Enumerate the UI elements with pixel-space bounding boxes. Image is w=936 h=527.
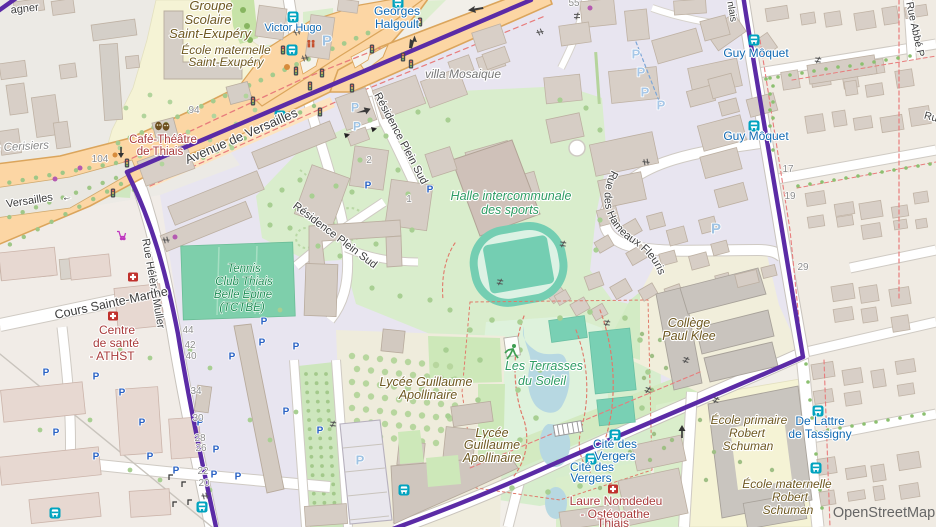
svg-text:44: 44 (182, 325, 194, 336)
svg-text:Thiais: Thiais (597, 516, 629, 527)
svg-text:de Tassigny: de Tassigny (788, 427, 851, 441)
svg-text:villa Mosaique: villa Mosaique (425, 67, 501, 81)
svg-text:42: 42 (184, 340, 196, 351)
svg-text:P: P (657, 98, 666, 113)
svg-text:22: 22 (197, 466, 209, 477)
svg-text:Halgoult: Halgoult (375, 17, 420, 31)
svg-text:Paul Klee: Paul Klee (662, 329, 716, 343)
svg-text:2: 2 (366, 155, 372, 166)
svg-text:P: P (235, 472, 242, 483)
svg-text:Georges: Georges (374, 4, 420, 18)
svg-text:P: P (641, 85, 650, 100)
svg-text:(TCTBE): (TCTBE) (219, 302, 265, 314)
svg-text:P: P (211, 470, 218, 481)
svg-text:P: P (353, 119, 361, 133)
svg-text:des sports: des sports (481, 203, 539, 217)
svg-text:←: ← (61, 190, 74, 204)
svg-text:P: P (283, 407, 290, 418)
svg-text:Guillaume: Guillaume (464, 438, 520, 452)
svg-text:40: 40 (185, 351, 197, 362)
svg-text:17: 17 (782, 164, 794, 175)
svg-text:P: P (365, 181, 372, 192)
svg-text:94: 94 (188, 105, 200, 116)
svg-text:du Soleil: du Soleil (518, 374, 567, 388)
svg-text:de santé: de santé (93, 336, 139, 350)
svg-text:P: P (711, 220, 721, 237)
svg-text:Belle Épine: Belle Épine (214, 288, 272, 301)
svg-text:30: 30 (192, 413, 204, 424)
svg-text:Collège: Collège (668, 316, 710, 330)
svg-text:19: 19 (784, 191, 796, 202)
svg-text:Guy Môquet: Guy Môquet (723, 46, 789, 60)
svg-text:P: P (147, 452, 154, 463)
svg-text:P: P (173, 466, 180, 477)
svg-text:P: P (317, 426, 324, 437)
svg-text:Lycée Guillaume: Lycée Guillaume (380, 375, 473, 389)
svg-text:Victor Hugo: Victor Hugo (264, 22, 321, 34)
svg-text:Guy Môquet: Guy Môquet (723, 129, 789, 143)
svg-text:Robert: Robert (729, 426, 766, 440)
svg-text:29: 29 (797, 262, 809, 273)
svg-text:P: P (139, 418, 146, 429)
svg-text:P: P (356, 453, 365, 468)
svg-text:P: P (322, 32, 332, 49)
svg-text:P: P (427, 185, 434, 196)
svg-text:P: P (259, 338, 266, 349)
svg-text:Saint-Exupéry: Saint-Exupéry (188, 55, 264, 69)
svg-text:P: P (119, 388, 126, 399)
svg-text:P: P (229, 352, 236, 363)
svg-text:École primaire: École primaire (711, 412, 788, 427)
svg-text:26: 26 (195, 443, 207, 454)
svg-text:de Thiais: de Thiais (137, 146, 184, 158)
svg-text:P: P (43, 368, 50, 379)
svg-text:Apollinaire: Apollinaire (462, 451, 521, 465)
svg-text:P: P (293, 342, 300, 353)
svg-text:Apollinaire: Apollinaire (398, 388, 457, 402)
svg-text:P: P (53, 428, 60, 439)
svg-text:Laure Nomdedeu: Laure Nomdedeu (570, 494, 663, 508)
svg-text:Halle intercommunale: Halle intercommunale (451, 189, 572, 203)
svg-text:Café-Théâtre: Café-Théâtre (129, 134, 197, 146)
svg-text:De Lattre: De Lattre (795, 414, 845, 428)
svg-text:Tennis: Tennis (227, 263, 261, 275)
svg-text:P: P (632, 47, 641, 62)
svg-text:1: 1 (406, 194, 412, 205)
svg-text:OpenStreetMap: OpenStreetMap (833, 505, 935, 521)
svg-text:55: 55 (568, 0, 580, 9)
svg-text:P: P (213, 445, 220, 456)
svg-text:Schuman: Schuman (723, 439, 774, 453)
svg-text:École maternelle: École maternelle (742, 476, 832, 491)
svg-text:- ATHST: - ATHST (89, 349, 135, 363)
svg-text:Club Thiais: Club Thiais (215, 276, 273, 288)
svg-text:P: P (261, 317, 268, 328)
svg-text:Robert: Robert (772, 490, 809, 504)
svg-text:Schuman: Schuman (763, 503, 814, 517)
svg-text:Centre: Centre (99, 323, 135, 337)
svg-text:P: P (93, 372, 100, 383)
svg-text:34: 34 (190, 386, 202, 397)
svg-text:Vergers: Vergers (570, 471, 611, 485)
svg-text:P: P (93, 452, 100, 463)
svg-text:Saint-Exupéry: Saint-Exupéry (169, 26, 252, 41)
svg-text:20: 20 (198, 478, 210, 489)
svg-text:104: 104 (92, 154, 109, 165)
svg-text:P: P (637, 65, 646, 80)
svg-text:Scolaire: Scolaire (185, 12, 232, 27)
svg-text:Les Terrasses: Les Terrasses (505, 359, 583, 373)
